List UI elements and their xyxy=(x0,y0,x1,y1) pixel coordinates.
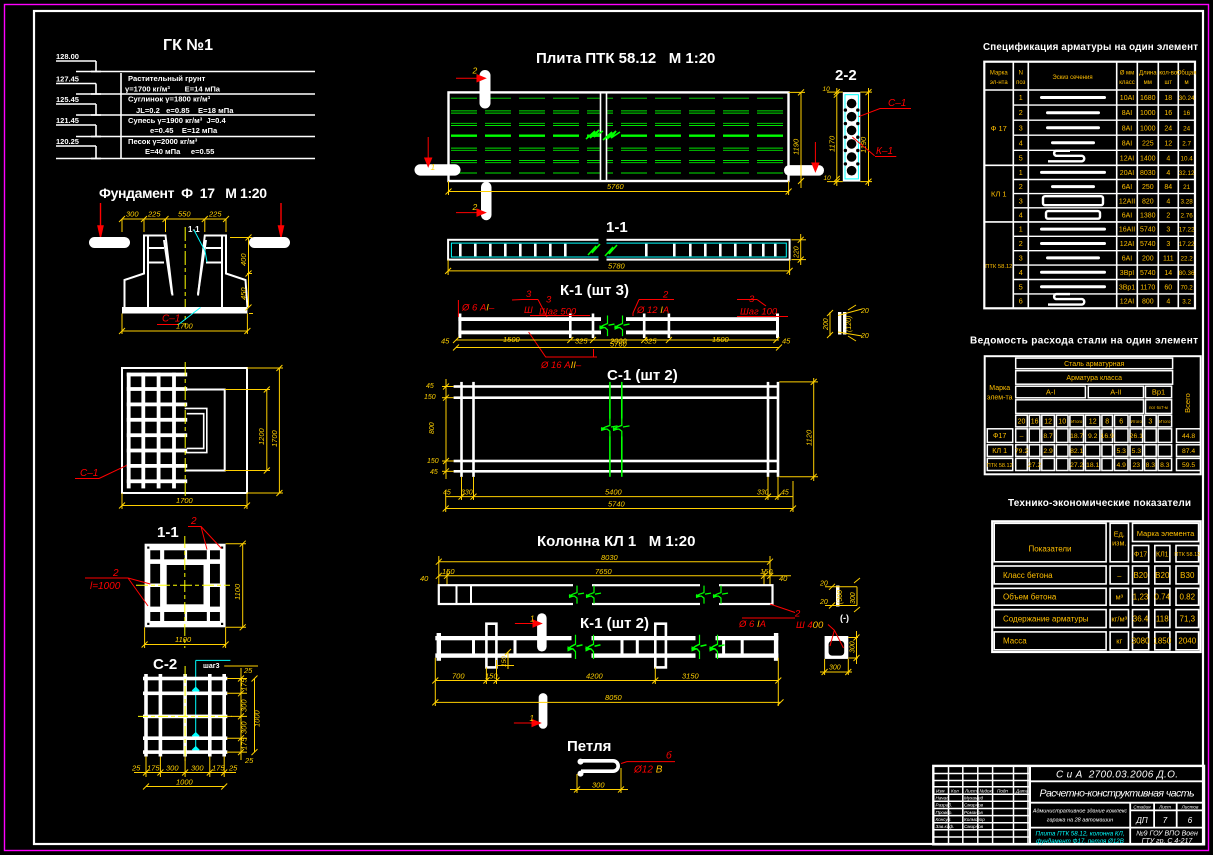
svg-text:Дата: Дата xyxy=(1015,789,1029,794)
svg-text:эл-нта: эл-нта xyxy=(990,80,1008,86)
svg-text:25: 25 xyxy=(228,764,238,773)
svg-text:5740: 5740 xyxy=(1140,227,1156,234)
svg-text:5760: 5760 xyxy=(607,182,625,191)
svg-text:3: 3 xyxy=(1166,227,1170,234)
svg-text:550: 550 xyxy=(178,210,191,219)
svg-text:20: 20 xyxy=(860,333,869,340)
svg-text:2: 2 xyxy=(1019,239,1023,248)
svg-text:3: 3 xyxy=(526,289,532,300)
svg-text:3: 3 xyxy=(1166,241,1170,248)
svg-text:330: 330 xyxy=(757,490,769,497)
svg-text:800: 800 xyxy=(1142,299,1154,306)
svg-text:м³: м³ xyxy=(1115,593,1123,602)
svg-text:20: 20 xyxy=(1018,419,1026,426)
svg-text:3: 3 xyxy=(1019,196,1023,205)
svg-text:Мухамед: Мухамед xyxy=(964,796,984,801)
svg-text:5: 5 xyxy=(1019,153,1023,162)
svg-text:17.22: 17.22 xyxy=(1179,241,1195,248)
svg-text:шт: шт xyxy=(1165,80,1173,86)
svg-text:Петля: Петля xyxy=(567,738,611,755)
svg-text:8.3: 8.3 xyxy=(1160,462,1170,469)
svg-text:27.2: 27.2 xyxy=(1028,462,1041,469)
svg-text:0.74: 0.74 xyxy=(1155,593,1171,602)
svg-text:16: 16 xyxy=(1164,110,1172,117)
svg-text:Длина: Длина xyxy=(1139,71,1157,77)
svg-text:С–1: С–1 xyxy=(888,98,906,109)
svg-text:Ведомость расхода стали на оди: Ведомость расхода стали на один элемент xyxy=(970,336,1198,347)
svg-text:5740: 5740 xyxy=(608,499,626,508)
svg-text:127.45: 127.45 xyxy=(56,75,79,84)
svg-text:5.3: 5.3 xyxy=(1132,448,1142,455)
svg-text:Консул.: Консул. xyxy=(936,817,952,822)
svg-text:ПТК 58.12: ПТК 58.12 xyxy=(1174,552,1200,558)
svg-text:2: 2 xyxy=(1019,108,1023,117)
svg-text:мм: мм xyxy=(1144,80,1152,86)
svg-text:Итого: Итого xyxy=(1159,419,1171,424)
svg-text:2: 2 xyxy=(472,66,478,76)
svg-text:150: 150 xyxy=(442,567,455,576)
svg-text:120.25: 120.25 xyxy=(56,137,79,146)
svg-text:7650: 7650 xyxy=(595,567,613,576)
svg-text:№док: №док xyxy=(980,789,993,794)
svg-text:175: 175 xyxy=(212,764,225,773)
svg-text:1: 1 xyxy=(1019,225,1023,234)
svg-text:8АI: 8АI xyxy=(1122,110,1133,117)
svg-text:6АI: 6АI xyxy=(1122,213,1133,220)
svg-text:е=0.45 Е=12 мПа: е=0.45 Е=12 мПа xyxy=(150,126,218,135)
svg-text:5400: 5400 xyxy=(605,488,623,497)
svg-text:Ø 12 IА: Ø 12 IА xyxy=(636,305,669,316)
svg-text:Ф17: Ф17 xyxy=(1134,552,1147,559)
svg-text:20АI: 20АI xyxy=(1120,170,1134,177)
svg-text:Ф 17: Ф 17 xyxy=(991,124,1007,133)
svg-text:45: 45 xyxy=(441,337,450,346)
svg-text:ДП: ДП xyxy=(1135,816,1148,825)
svg-text:Всего: Всего xyxy=(1183,393,1192,413)
svg-text:Ш 400: Ш 400 xyxy=(796,620,824,631)
svg-text:125.45: 125.45 xyxy=(56,95,79,104)
svg-text:8.3: 8.3 xyxy=(1146,462,1156,469)
svg-text:2: 2 xyxy=(794,609,801,620)
svg-text:1190: 1190 xyxy=(859,136,868,153)
svg-text:Разраб.: Разраб. xyxy=(936,803,953,808)
svg-text:1700: 1700 xyxy=(270,429,279,447)
svg-text:Итого: Итого xyxy=(1131,419,1143,424)
svg-text:Технико-экономические показате: Технико-экономические показатели xyxy=(1008,498,1191,509)
svg-text:5780: 5780 xyxy=(608,262,626,271)
svg-text:30.24: 30.24 xyxy=(1179,95,1195,102)
svg-text:Объем бетона: Объем бетона xyxy=(1003,593,1057,602)
svg-text:Расчетно-конструктивная часть: Расчетно-конструктивная часть xyxy=(1040,788,1195,800)
svg-text:18: 18 xyxy=(1164,95,1172,102)
svg-text:8.7: 8.7 xyxy=(1043,433,1053,440)
svg-text:200: 200 xyxy=(823,318,830,331)
svg-text:шаг3: шаг3 xyxy=(203,663,220,670)
svg-text:Изм: Изм xyxy=(936,789,945,794)
svg-text:1500: 1500 xyxy=(503,335,521,344)
svg-text:Ø12 В: Ø12 В xyxy=(633,765,663,776)
svg-text:325: 325 xyxy=(644,337,657,346)
svg-text:Зав.каф.: Зав.каф. xyxy=(936,824,955,829)
svg-text:59.5: 59.5 xyxy=(1182,462,1195,469)
svg-text:1: 1 xyxy=(530,714,534,723)
svg-text:Супесь γ=1900 кг/м³ J=0.4: Супесь γ=1900 кг/м³ J=0.4 xyxy=(128,116,227,125)
svg-text:Ед.: Ед. xyxy=(1114,530,1125,539)
svg-text:Шаг 100: Шаг 100 xyxy=(740,307,778,318)
svg-text:21: 21 xyxy=(1183,184,1191,191)
svg-text:5740: 5740 xyxy=(1140,241,1156,248)
svg-text:Кол: Кол xyxy=(951,789,959,794)
svg-text:Марка: Марка xyxy=(990,71,1008,77)
svg-text:гаража на 28 автомашин: гаража на 28 автомашин xyxy=(1047,818,1113,824)
svg-text:32.12: 32.12 xyxy=(1179,170,1195,177)
svg-text:Плита ПТК 58.12, колонна КЛ,: Плита ПТК 58.12, колонна КЛ, xyxy=(1036,831,1125,838)
svg-text:24: 24 xyxy=(1164,125,1172,132)
svg-text:Колонна КЛ 1 М 1:20: Колонна КЛ 1 М 1:20 xyxy=(537,533,695,550)
svg-text:9.2: 9.2 xyxy=(1088,433,1098,440)
svg-text:Эскиз сечения: Эскиз сечения xyxy=(1052,75,1092,81)
svg-text:5.3: 5.3 xyxy=(1116,448,1126,455)
svg-text:36.4: 36.4 xyxy=(1133,614,1149,623)
svg-text:12АII: 12АII xyxy=(1119,198,1135,205)
svg-text:К-1 (шт 3): К-1 (шт 3) xyxy=(560,282,629,299)
svg-text:1,23: 1,23 xyxy=(1133,593,1149,602)
svg-text:1: 1 xyxy=(431,162,436,172)
svg-text:800: 800 xyxy=(429,422,436,434)
svg-text:118: 118 xyxy=(1156,614,1169,623)
svg-text:1170: 1170 xyxy=(1140,284,1155,291)
svg-text:В20: В20 xyxy=(1155,571,1170,580)
svg-text:5760: 5760 xyxy=(610,340,628,349)
svg-text:225: 225 xyxy=(208,210,222,219)
svg-text:10.4: 10.4 xyxy=(1180,155,1193,162)
svg-text:1120: 1120 xyxy=(805,429,814,446)
svg-text:5: 5 xyxy=(1019,282,1023,291)
svg-text:JL=0.2 е=0.85 Е=18 мПа: JL=0.2 е=0.85 Е=18 мПа xyxy=(136,106,234,115)
svg-text:фундамент Ф17, петля Ø12В: фундамент Ф17, петля Ø12В xyxy=(1036,838,1124,845)
svg-text:γ=1700 кг/м³ Е=14 мПа: γ=1700 кг/м³ Е=14 мПа xyxy=(125,85,221,94)
svg-text:поз: поз xyxy=(1016,80,1026,86)
svg-text:1000: 1000 xyxy=(253,709,262,727)
svg-text:16АII: 16АII xyxy=(1119,227,1135,234)
svg-text:150: 150 xyxy=(427,458,439,465)
svg-text:25: 25 xyxy=(131,764,141,773)
svg-text:2.76: 2.76 xyxy=(1180,213,1193,220)
svg-text:12АI: 12АI xyxy=(1120,241,1134,248)
svg-text:ГТУ гр. С 4-217: ГТУ гр. С 4-217 xyxy=(1142,838,1194,845)
svg-text:6АI: 6АI xyxy=(1122,256,1133,263)
svg-text:3150: 3150 xyxy=(682,672,700,681)
svg-text:1: 1 xyxy=(1019,168,1023,177)
svg-text:2: 2 xyxy=(112,568,119,579)
svg-text:Масса: Масса xyxy=(1003,637,1027,646)
svg-text:кг: кг xyxy=(1116,637,1122,646)
svg-text:Смирнов: Смирнов xyxy=(964,803,984,808)
svg-text:14: 14 xyxy=(1164,270,1172,277)
svg-text:(120): (120) xyxy=(846,316,853,332)
svg-text:111: 111 xyxy=(1163,256,1174,263)
svg-text:2.9: 2.9 xyxy=(1043,448,1053,455)
svg-text:С и А 2700.03.2006 Д.О.: С и А 2700.03.2006 Д.О. xyxy=(1056,770,1178,781)
svg-text:Ф17: Ф17 xyxy=(993,431,1006,440)
svg-text:Провер.: Провер. xyxy=(936,810,953,815)
svg-text:изм.: изм. xyxy=(1112,539,1126,548)
svg-text:(300: (300 xyxy=(837,590,844,604)
svg-text:Е=40 мПа е=0.55: Е=40 мПа е=0.55 xyxy=(145,147,215,156)
svg-text:Ш: Ш xyxy=(524,305,533,316)
svg-text:Класс бетона: Класс бетона xyxy=(1003,571,1053,580)
svg-text:3080: 3080 xyxy=(1132,637,1150,646)
svg-text:450: 450 xyxy=(239,287,248,300)
svg-text:150: 150 xyxy=(424,394,436,401)
svg-text:44.8: 44.8 xyxy=(1182,433,1195,440)
svg-text:6: 6 xyxy=(1188,816,1193,825)
svg-text:10: 10 xyxy=(823,86,831,93)
svg-text:1: 1 xyxy=(530,615,534,624)
svg-text:1500: 1500 xyxy=(712,335,730,344)
svg-text:45: 45 xyxy=(430,469,438,476)
svg-text:16: 16 xyxy=(1183,110,1191,117)
svg-text:С–1: С–1 xyxy=(80,468,98,479)
svg-text:3ВрI: 3ВрI xyxy=(1120,270,1134,277)
svg-text:45: 45 xyxy=(443,490,451,497)
svg-text:25: 25 xyxy=(243,666,253,675)
svg-text:1700: 1700 xyxy=(176,322,194,331)
svg-text:300: 300 xyxy=(850,592,857,604)
svg-text:1-1: 1-1 xyxy=(157,524,179,541)
svg-text:325: 325 xyxy=(575,337,588,346)
svg-text:250: 250 xyxy=(1142,184,1154,191)
svg-text:3.28: 3.28 xyxy=(1180,198,1193,205)
svg-text:Итого: Итого xyxy=(1071,419,1083,424)
svg-text:Ø 6 IА: Ø 6 IА xyxy=(738,619,766,630)
svg-text:6: 6 xyxy=(1119,419,1123,426)
svg-text:А-I: А-I xyxy=(1046,388,1056,397)
svg-text:8: 8 xyxy=(1105,419,1109,426)
svg-text:4: 4 xyxy=(1166,198,1170,205)
svg-text:12: 12 xyxy=(1044,419,1052,426)
svg-text:2: 2 xyxy=(1166,213,1170,220)
svg-text:25: 25 xyxy=(244,756,254,765)
svg-text:N: N xyxy=(1019,71,1023,77)
svg-text:300: 300 xyxy=(126,210,139,219)
svg-text:2: 2 xyxy=(472,202,478,212)
svg-text:Лист: Лист xyxy=(1158,805,1171,810)
svg-text:Марка элемента: Марка элемента xyxy=(1137,529,1195,538)
svg-text:330: 330 xyxy=(461,490,473,497)
svg-text:150: 150 xyxy=(485,672,498,681)
svg-text:79.2: 79.2 xyxy=(1015,448,1028,455)
svg-text:Суглинок γ=1800 кг/м³: Суглинок γ=1800 кг/м³ xyxy=(128,95,211,104)
svg-text:6: 6 xyxy=(1019,297,1023,306)
svg-text:8030: 8030 xyxy=(1140,170,1156,177)
svg-text:1100: 1100 xyxy=(175,635,192,644)
svg-text:кг/м³: кг/м³ xyxy=(1111,614,1127,623)
svg-text:м: м xyxy=(1185,80,1189,86)
svg-text:1-1: 1-1 xyxy=(188,225,200,234)
svg-text:пог 6х7-м: пог 6х7-м xyxy=(1149,405,1168,410)
svg-text:24: 24 xyxy=(1183,125,1191,132)
svg-text:1000: 1000 xyxy=(176,778,194,787)
svg-text:1000: 1000 xyxy=(1140,110,1156,117)
svg-text:10: 10 xyxy=(824,175,832,182)
svg-text:Административное здание комлек: Административное здание комлекс xyxy=(1032,809,1128,815)
svg-text:71,3: 71,3 xyxy=(1180,614,1196,623)
svg-text:3: 3 xyxy=(1148,419,1152,426)
svg-text:1: 1 xyxy=(1019,93,1023,102)
svg-text:Песок γ=2000 кг/м³: Песок γ=2000 кг/м³ xyxy=(128,137,198,146)
svg-text:2040: 2040 xyxy=(1178,637,1196,646)
svg-text:16: 16 xyxy=(1031,419,1039,426)
svg-text:К–1: К–1 xyxy=(876,146,893,157)
svg-text:Растительный грунт: Растительный грунт xyxy=(128,74,206,83)
svg-text:Листов: Листов xyxy=(1181,805,1199,810)
svg-text:175: 175 xyxy=(240,737,249,750)
svg-text:4: 4 xyxy=(1166,299,1170,306)
svg-text:7: 7 xyxy=(1163,816,1168,825)
svg-text:1100: 1100 xyxy=(233,583,242,600)
svg-text:класс: класс xyxy=(1119,80,1135,86)
svg-text:2: 2 xyxy=(1019,182,1023,191)
svg-text:60: 60 xyxy=(1164,284,1172,291)
svg-text:87.4: 87.4 xyxy=(1182,448,1195,455)
svg-text:элем-та: элем-та xyxy=(987,395,1013,402)
svg-text:8АI: 8АI xyxy=(1122,140,1133,147)
svg-text:1200: 1200 xyxy=(257,427,266,445)
svg-text:40: 40 xyxy=(779,574,788,583)
svg-text:Романов: Романов xyxy=(964,810,983,815)
svg-text:ГК №1: ГК №1 xyxy=(163,37,213,54)
svg-text:Плита ПТК 58.12 М 1:20: Плита ПТК 58.12 М 1:20 xyxy=(536,50,715,67)
svg-text:КЛ 1: КЛ 1 xyxy=(992,446,1007,455)
svg-text:45: 45 xyxy=(426,383,434,390)
svg-text:820: 820 xyxy=(1142,198,1154,205)
svg-text:220: 220 xyxy=(794,246,801,259)
svg-text:3: 3 xyxy=(546,295,552,306)
svg-text:300: 300 xyxy=(166,764,179,773)
svg-text:27.2: 27.2 xyxy=(1070,462,1083,469)
svg-text:Смирнов: Смирнов xyxy=(964,824,984,829)
svg-text:175: 175 xyxy=(147,764,160,773)
svg-text:200: 200 xyxy=(1142,256,1154,263)
svg-text:б: б xyxy=(666,750,672,762)
svg-text:2: 2 xyxy=(662,290,669,301)
svg-text:1-1: 1-1 xyxy=(606,219,628,236)
svg-text:К-1 (шт 2): К-1 (шт 2) xyxy=(580,615,649,632)
svg-text:Колмогор: Колмогор xyxy=(964,817,985,822)
svg-text:Общая: Общая xyxy=(1177,71,1197,77)
svg-text:Лист: Лист xyxy=(964,789,977,794)
svg-text:3: 3 xyxy=(1019,254,1023,263)
svg-text:84: 84 xyxy=(1164,184,1172,191)
svg-text:225: 225 xyxy=(147,210,161,219)
svg-text:Стадия: Стадия xyxy=(1133,805,1151,810)
svg-text:8030: 8030 xyxy=(601,553,619,562)
svg-text:6АI: 6АI xyxy=(1122,184,1133,191)
svg-text:12: 12 xyxy=(1164,140,1172,147)
svg-text:1400: 1400 xyxy=(1140,155,1156,162)
svg-text:80.36: 80.36 xyxy=(1179,270,1195,277)
svg-text:400: 400 xyxy=(239,253,248,266)
svg-text:225: 225 xyxy=(1142,140,1154,147)
svg-text:128.00: 128.00 xyxy=(56,52,79,61)
svg-text:40: 40 xyxy=(420,574,429,583)
svg-text:Подп: Подп xyxy=(997,789,1008,794)
svg-text:0.82: 0.82 xyxy=(1180,593,1196,602)
svg-text:2: 2 xyxy=(190,516,197,527)
svg-text:8050: 8050 xyxy=(605,693,623,702)
svg-text:4200: 4200 xyxy=(586,672,604,681)
svg-text:4.9: 4.9 xyxy=(1116,462,1126,469)
svg-text:№9 ГОУ ВПО Воен: №9 ГОУ ВПО Воен xyxy=(1136,831,1198,838)
svg-text:Марка: Марка xyxy=(989,385,1010,392)
svg-text:82.1: 82.1 xyxy=(1070,448,1083,455)
svg-text:175: 175 xyxy=(240,678,249,691)
svg-text:1680: 1680 xyxy=(1140,95,1156,102)
svg-text:–: – xyxy=(1020,433,1024,440)
svg-text:КЛ1: КЛ1 xyxy=(1156,552,1169,559)
svg-text:3: 3 xyxy=(1019,123,1023,132)
svg-text:С-2: С-2 xyxy=(153,656,177,673)
svg-text:В30: В30 xyxy=(1180,571,1195,580)
svg-text:2.7: 2.7 xyxy=(1182,140,1191,147)
svg-text:300: 300 xyxy=(592,781,605,790)
svg-text:1000: 1000 xyxy=(1140,125,1156,132)
svg-text:Показатели: Показатели xyxy=(1028,545,1071,554)
svg-text:Арматура класса: Арматура класса xyxy=(1066,375,1122,382)
svg-text:1190: 1190 xyxy=(792,138,801,155)
svg-text:10АI: 10АI xyxy=(1120,95,1134,102)
svg-text:2-2: 2-2 xyxy=(835,67,857,84)
svg-text:150: 150 xyxy=(760,567,773,576)
svg-text:С-1 (шт 2): С-1 (шт 2) xyxy=(607,367,678,384)
svg-text:300: 300 xyxy=(850,641,857,653)
svg-text:1170: 1170 xyxy=(828,135,837,152)
svg-text:5740: 5740 xyxy=(1140,270,1156,277)
svg-text:ПТК 58.12: ПТК 58.12 xyxy=(985,264,1012,270)
svg-text:12АI: 12АI xyxy=(1120,299,1134,306)
svg-text:300: 300 xyxy=(240,699,249,712)
svg-text:кол-во: кол-во xyxy=(1159,71,1178,77)
svg-text:20: 20 xyxy=(860,308,869,315)
svg-text:300: 300 xyxy=(240,721,249,734)
svg-text:300: 300 xyxy=(191,764,204,773)
svg-text:150: 150 xyxy=(501,656,508,667)
svg-text:300: 300 xyxy=(829,665,841,672)
svg-text:3Вр1: 3Вр1 xyxy=(1119,284,1135,291)
svg-text:12АI: 12АI xyxy=(1120,155,1134,162)
svg-text:22.2: 22.2 xyxy=(1180,256,1193,263)
svg-text:4: 4 xyxy=(1166,155,1170,162)
svg-text:8АI: 8АI xyxy=(1122,125,1133,132)
svg-text:4: 4 xyxy=(1019,211,1023,220)
svg-text:1380: 1380 xyxy=(1140,213,1156,220)
svg-text:Ø 16 АII–: Ø 16 АII– xyxy=(540,360,582,371)
svg-text:ПТК 58.12: ПТК 58.12 xyxy=(987,463,1013,469)
svg-text:700: 700 xyxy=(452,672,465,681)
svg-text:23: 23 xyxy=(1133,462,1141,469)
svg-text:18.1: 18.1 xyxy=(1086,462,1099,469)
svg-text:Ø 6 АI–: Ø 6 АI– xyxy=(461,303,495,314)
svg-text:3.2: 3.2 xyxy=(1182,299,1191,306)
svg-text:121.45: 121.45 xyxy=(56,116,79,125)
svg-text:18.7: 18.7 xyxy=(1070,433,1083,440)
svg-text:1850: 1850 xyxy=(1153,637,1171,646)
svg-text:КЛ 1: КЛ 1 xyxy=(991,190,1007,199)
svg-text:26.1: 26.1 xyxy=(1130,433,1143,440)
svg-text:10: 10 xyxy=(1058,419,1066,426)
svg-text:Содержание арматуры: Содержание арматуры xyxy=(1003,614,1089,623)
